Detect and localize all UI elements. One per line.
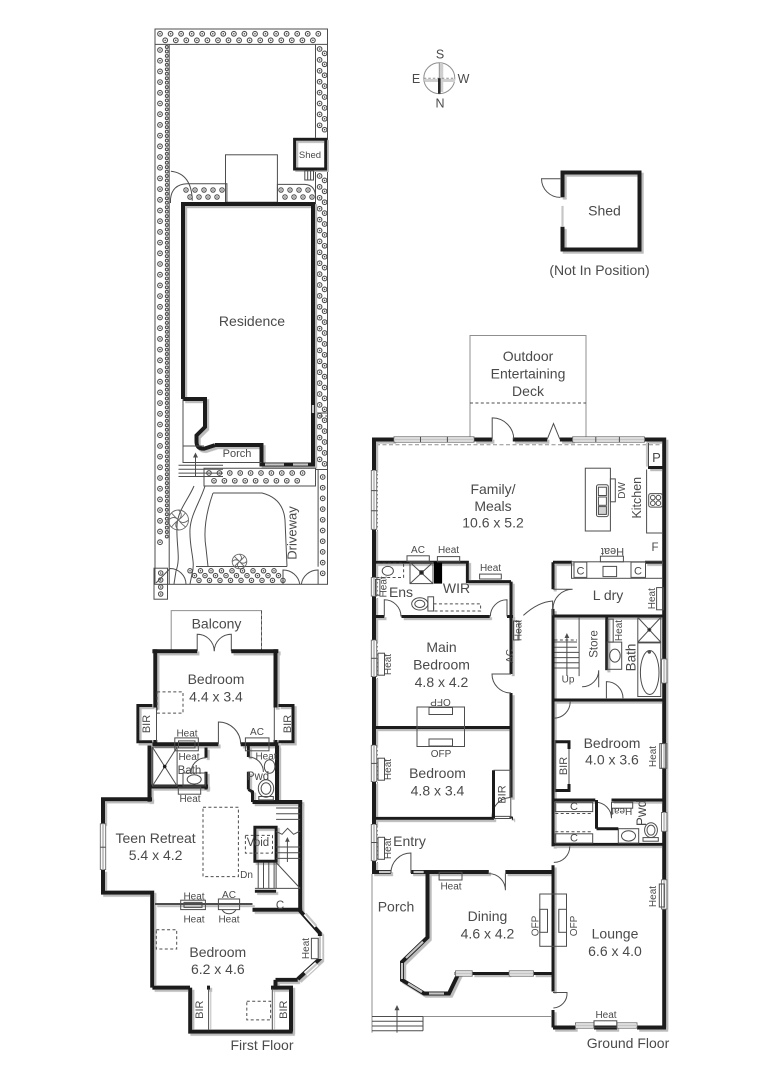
svg-text:Heat: Heat bbox=[601, 545, 624, 557]
svg-text:Heat: Heat bbox=[383, 759, 394, 780]
svg-text:BIR: BIR bbox=[282, 715, 294, 733]
svg-text:Shed: Shed bbox=[588, 203, 621, 219]
svg-text:4.4 x 3.4: 4.4 x 3.4 bbox=[189, 689, 243, 705]
svg-text:E: E bbox=[412, 72, 420, 86]
svg-text:Family/: Family/ bbox=[470, 481, 515, 497]
svg-text:Balcony: Balcony bbox=[192, 616, 242, 632]
svg-text:Heat: Heat bbox=[218, 915, 239, 926]
svg-text:OFP: OFP bbox=[531, 915, 542, 936]
svg-text:Entertaining: Entertaining bbox=[491, 366, 566, 382]
svg-text:Porch: Porch bbox=[223, 448, 252, 460]
svg-text:Residence: Residence bbox=[219, 313, 285, 329]
svg-text:Heat: Heat bbox=[648, 886, 659, 907]
svg-text:AC: AC bbox=[411, 545, 425, 556]
svg-text:4.6 x 4.2: 4.6 x 4.2 bbox=[461, 926, 515, 942]
svg-text:Void: Void bbox=[247, 837, 269, 849]
svg-text:Bath: Bath bbox=[624, 644, 639, 672]
svg-text:6.6 x 4.0: 6.6 x 4.0 bbox=[588, 943, 642, 959]
svg-text:Heat: Heat bbox=[183, 892, 204, 903]
svg-text:OFP: OFP bbox=[430, 696, 451, 707]
svg-text:(Not In Position): (Not In Position) bbox=[549, 262, 649, 278]
svg-text:Ground Floor: Ground Floor bbox=[587, 1035, 670, 1051]
svg-text:5.4 x 4.2: 5.4 x 4.2 bbox=[129, 847, 183, 863]
svg-text:BIR: BIR bbox=[194, 1000, 206, 1018]
svg-text:6.2 x 4.6: 6.2 x 4.6 bbox=[191, 961, 245, 977]
svg-text:Heat: Heat bbox=[480, 563, 501, 574]
svg-text:4.8 x 4.2: 4.8 x 4.2 bbox=[415, 674, 469, 690]
svg-text:P: P bbox=[652, 450, 661, 465]
svg-text:WIR: WIR bbox=[443, 580, 470, 596]
svg-text:Bedroom: Bedroom bbox=[188, 671, 245, 687]
svg-text:Pwd: Pwd bbox=[634, 800, 649, 826]
svg-text:Heat: Heat bbox=[183, 915, 204, 926]
svg-text:Meals: Meals bbox=[474, 498, 511, 514]
svg-text:W: W bbox=[458, 72, 470, 86]
svg-text:4.0 x 3.6: 4.0 x 3.6 bbox=[585, 752, 639, 768]
svg-text:C: C bbox=[570, 801, 578, 813]
svg-text:OFP: OFP bbox=[569, 915, 580, 936]
svg-text:L dry: L dry bbox=[593, 587, 624, 603]
svg-text:Lounge: Lounge bbox=[592, 926, 639, 942]
svg-text:Heat: Heat bbox=[379, 576, 390, 597]
svg-text:Pwd: Pwd bbox=[247, 771, 269, 783]
svg-text:F: F bbox=[651, 542, 658, 554]
svg-text:BIR: BIR bbox=[558, 757, 570, 775]
svg-text:Bedroom: Bedroom bbox=[413, 657, 470, 673]
svg-text:Heat: Heat bbox=[440, 882, 461, 893]
svg-text:Shed: Shed bbox=[299, 150, 321, 161]
svg-text:OFP: OFP bbox=[431, 749, 452, 760]
svg-text:10.6 x 5.2: 10.6 x 5.2 bbox=[462, 515, 524, 531]
svg-text:Heat: Heat bbox=[383, 838, 394, 859]
svg-text:C: C bbox=[276, 900, 284, 912]
svg-text:DW: DW bbox=[617, 482, 628, 499]
svg-text:First Floor: First Floor bbox=[231, 1037, 294, 1053]
svg-text:BIR: BIR bbox=[141, 715, 153, 733]
svg-text:Heat: Heat bbox=[648, 746, 659, 767]
svg-text:Outdoor: Outdoor bbox=[503, 348, 554, 364]
svg-text:Bedroom: Bedroom bbox=[409, 765, 466, 781]
svg-text:Heat: Heat bbox=[611, 805, 632, 816]
svg-text:Ens: Ens bbox=[389, 584, 413, 600]
svg-text:BIR: BIR bbox=[278, 1000, 290, 1018]
svg-text:Heat: Heat bbox=[614, 620, 625, 641]
svg-text:Heat: Heat bbox=[179, 794, 200, 805]
svg-text:Deck: Deck bbox=[512, 383, 545, 399]
svg-text:AC: AC bbox=[505, 649, 516, 663]
svg-text:C: C bbox=[570, 833, 578, 845]
svg-text:Kitchen: Kitchen bbox=[630, 477, 644, 519]
svg-text:Teen Retreat: Teen Retreat bbox=[116, 830, 196, 846]
svg-text:S: S bbox=[436, 48, 444, 62]
svg-text:Porch: Porch bbox=[378, 899, 415, 915]
svg-text:Heat: Heat bbox=[595, 1010, 616, 1021]
svg-text:Dn: Dn bbox=[240, 870, 253, 881]
svg-text:Up: Up bbox=[562, 675, 575, 686]
svg-text:Heat: Heat bbox=[301, 938, 312, 959]
svg-text:Heat: Heat bbox=[383, 654, 394, 675]
svg-text:Main: Main bbox=[426, 639, 456, 655]
svg-text:Bedroom: Bedroom bbox=[189, 944, 246, 960]
svg-text:AC: AC bbox=[250, 727, 264, 738]
svg-text:C: C bbox=[634, 566, 642, 578]
svg-text:C: C bbox=[577, 566, 585, 578]
svg-text:BIR: BIR bbox=[497, 785, 509, 803]
svg-text:Heat: Heat bbox=[647, 588, 658, 609]
svg-text:Entry: Entry bbox=[393, 833, 426, 849]
svg-text:Bedroom: Bedroom bbox=[584, 735, 641, 751]
svg-text:Heat: Heat bbox=[514, 620, 525, 641]
svg-text:Heat: Heat bbox=[438, 545, 459, 556]
svg-text:4.8 x 3.4: 4.8 x 3.4 bbox=[411, 783, 465, 799]
svg-text:Store: Store bbox=[589, 630, 601, 658]
svg-text:N: N bbox=[435, 97, 444, 111]
svg-text:Dining: Dining bbox=[468, 908, 508, 924]
